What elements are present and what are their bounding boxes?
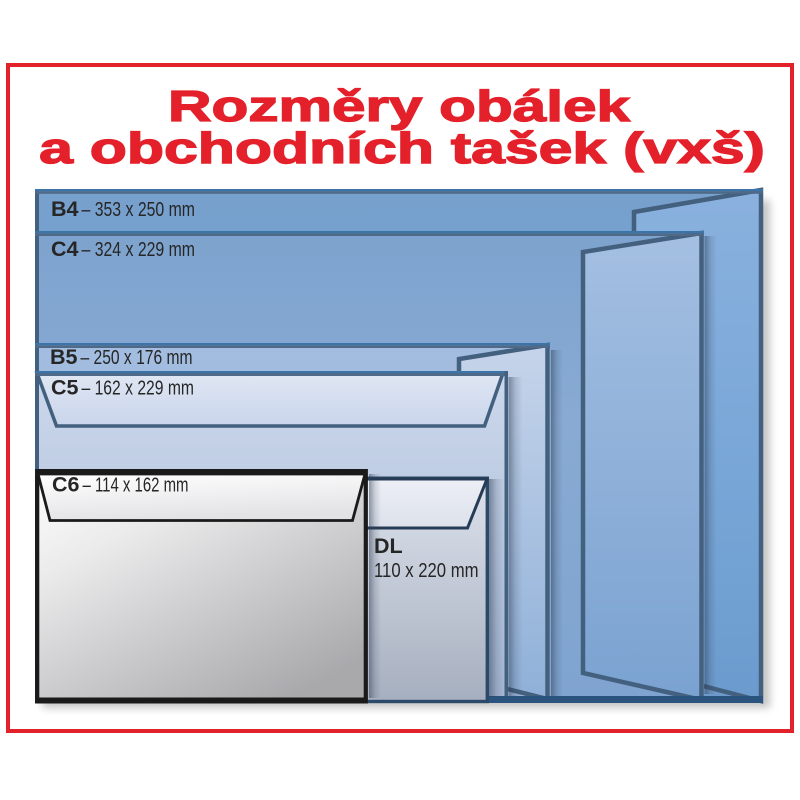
svg-text:DL: DL <box>374 534 403 558</box>
svg-text:– 114 x 162 mm: – 114 x 162 mm <box>83 475 189 497</box>
svg-text:– 324 x 229 mm: – 324 x 229 mm <box>82 239 196 261</box>
svg-text:– 250 x 176 mm: – 250 x 176 mm <box>81 347 193 369</box>
svg-text:C4: C4 <box>51 237 79 261</box>
svg-text:C6: C6 <box>52 473 80 497</box>
svg-text:a obchodních tašek (vxš): a obchodních tašek (vxš) <box>39 124 765 173</box>
svg-text:C5: C5 <box>51 376 79 400</box>
svg-text:– 162 x 229 mm: – 162 x 229 mm <box>82 378 195 400</box>
svg-text:– 353 x 250 mm: – 353 x 250 mm <box>82 199 196 221</box>
svg-text:110 x 220 mm: 110 x 220 mm <box>374 560 479 582</box>
svg-text:B5: B5 <box>50 345 78 369</box>
svg-text:B4: B4 <box>51 197 79 221</box>
